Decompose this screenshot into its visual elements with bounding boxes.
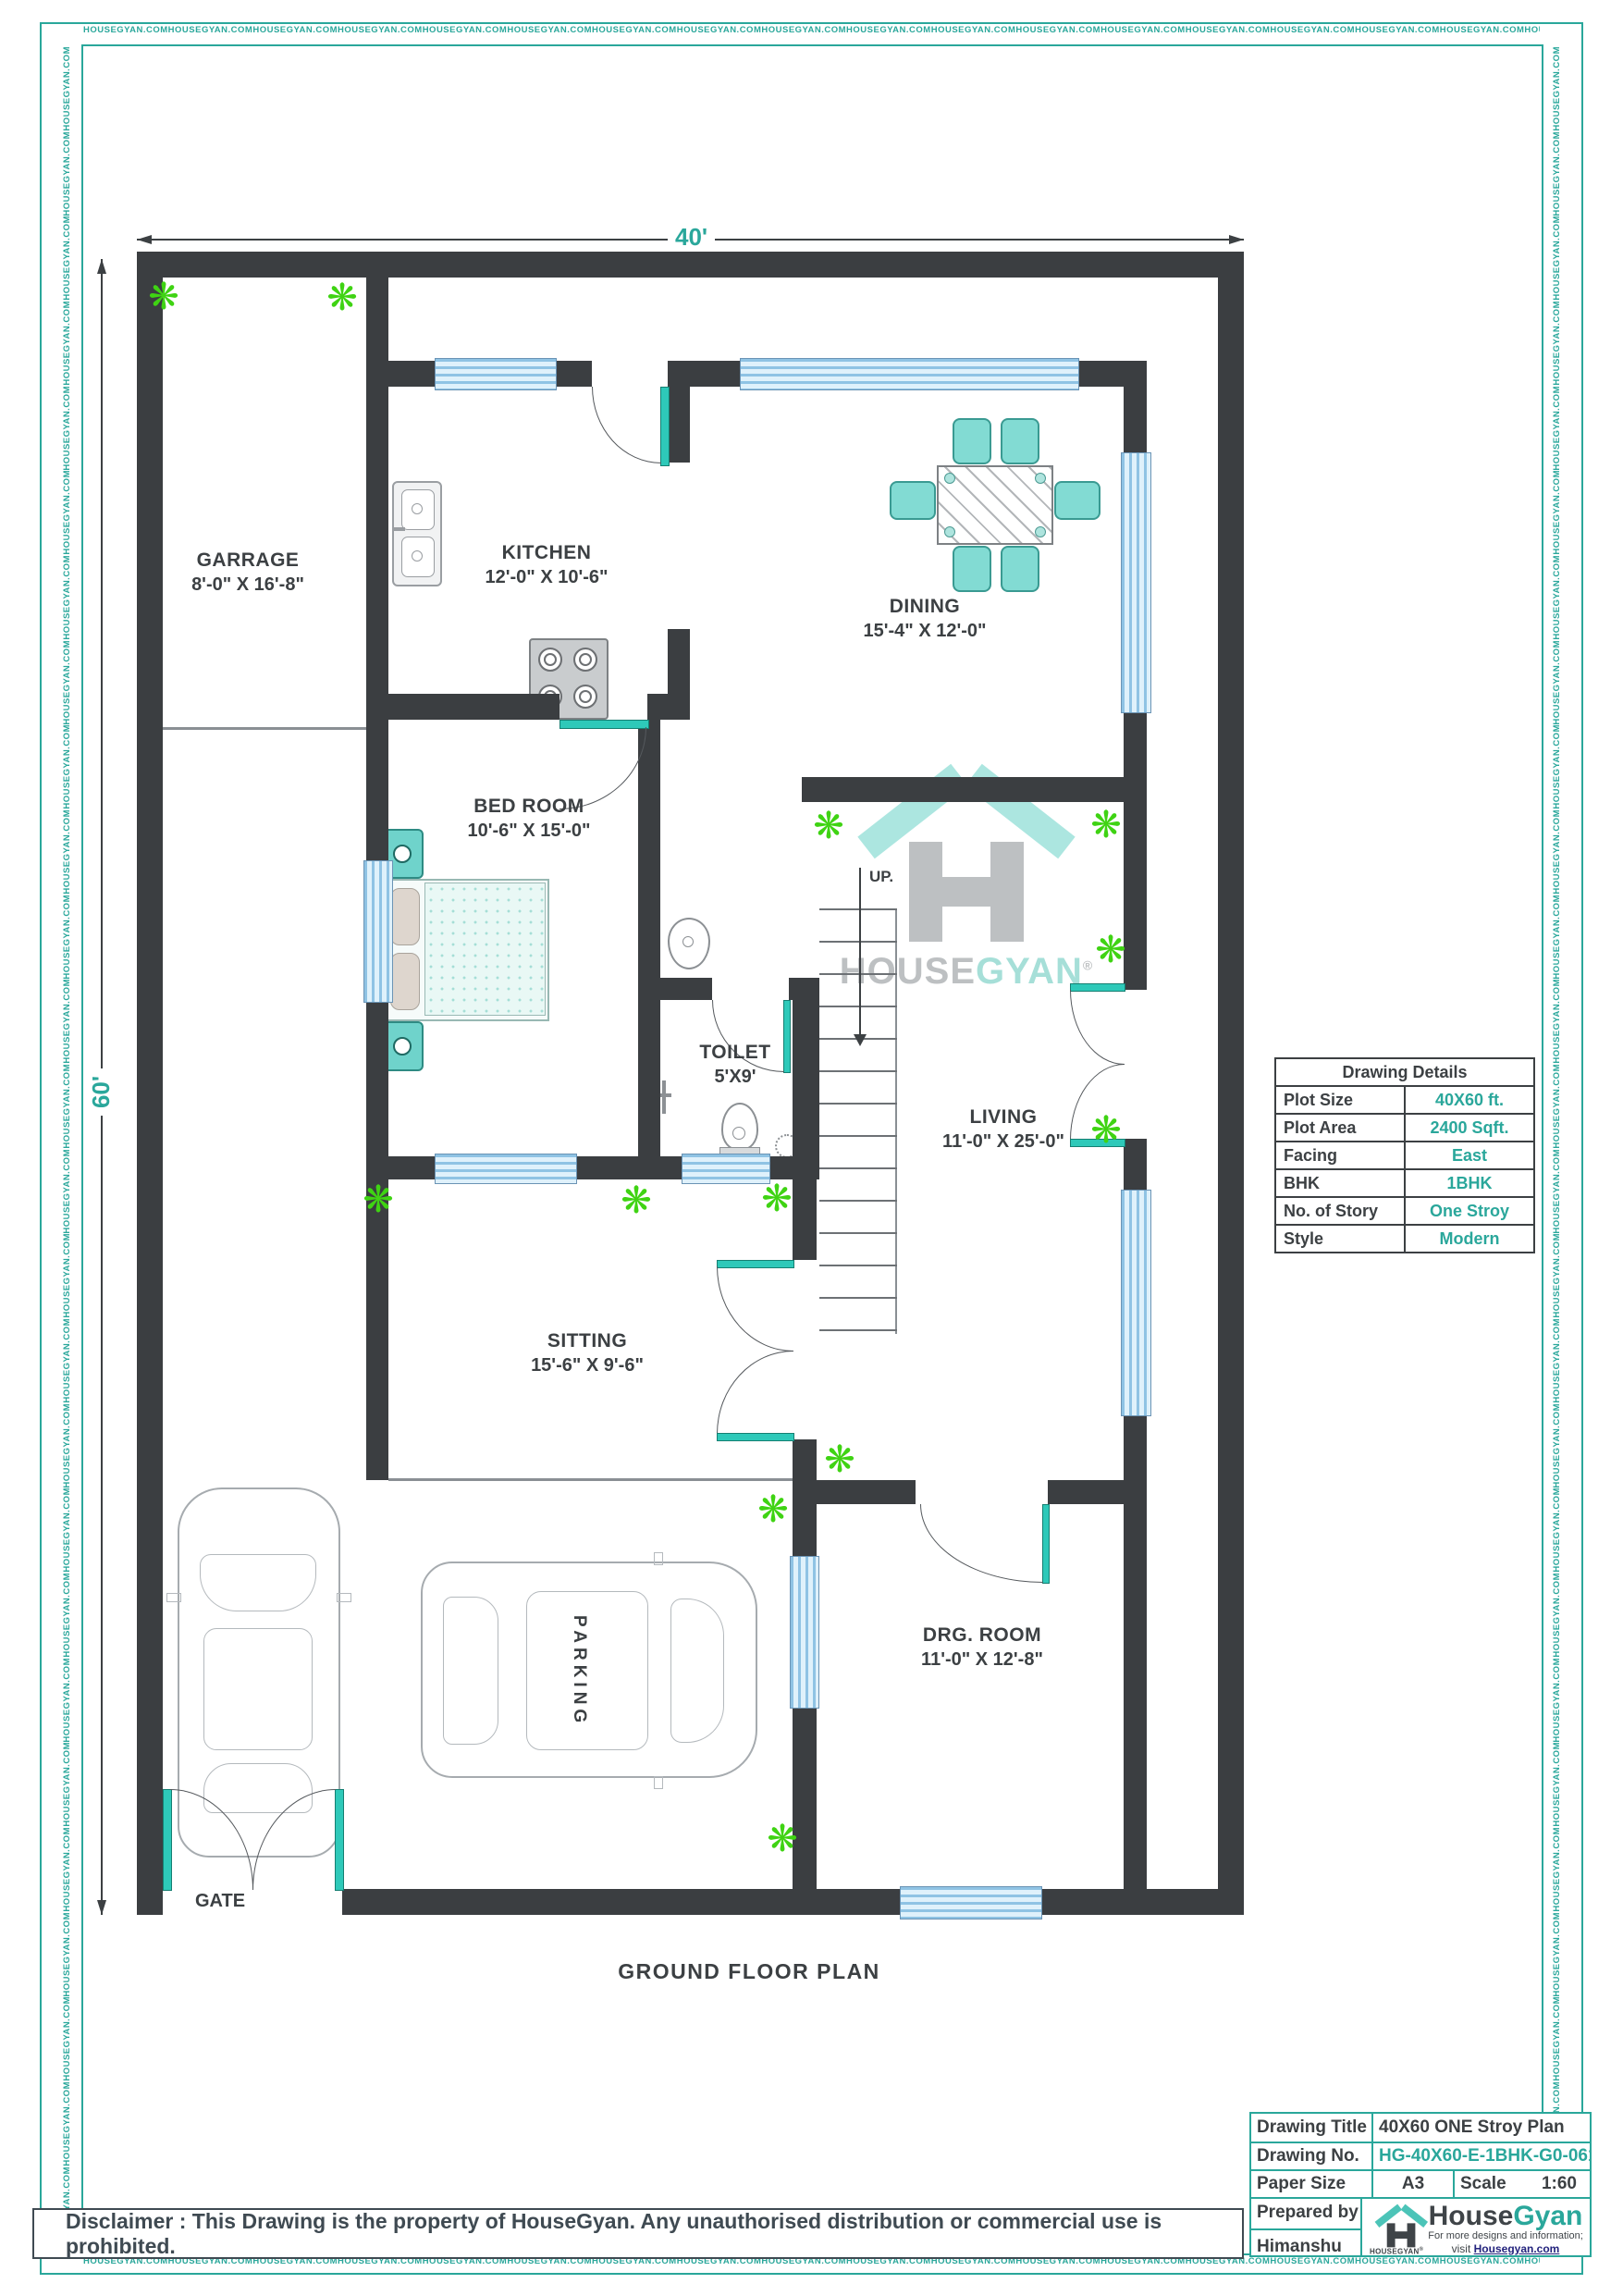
watermark-text: HOUSEGYAN.COM bbox=[62, 46, 72, 131]
watermark-text: HOUSEGYAN.COM bbox=[338, 25, 423, 42]
watermark-text: HOUSEGYAN.COM bbox=[1552, 1912, 1562, 1997]
drawing-details-table: Drawing Details Plot Size40X60 ft.Plot A… bbox=[1274, 1057, 1535, 1253]
watermark-text: HOUSEGYAN.COM bbox=[1552, 724, 1562, 809]
wall-plot-right bbox=[1218, 252, 1244, 1915]
watermark-text: HOUSEGYAN.COM bbox=[507, 25, 592, 42]
room-label-garage: GARRAGE 8'-0" X 16'-8" bbox=[191, 549, 304, 596]
watermark-text: HOUSEGYAN.COM bbox=[1552, 216, 1562, 301]
wall-plot-bottom bbox=[342, 1889, 1218, 1915]
watermark-text: HOUSEGYAN.COM bbox=[62, 1487, 72, 1573]
sink-drain-icon bbox=[412, 550, 423, 562]
shower-tap-icon bbox=[662, 1080, 666, 1114]
logo-h-icon bbox=[990, 842, 1024, 942]
wall-plot-top bbox=[137, 252, 1244, 278]
prepared-by-value: Himanshu bbox=[1251, 2230, 1360, 2265]
table-bolt-icon bbox=[1035, 473, 1046, 484]
door-drg-leaf bbox=[1042, 1504, 1050, 1584]
details-row: FacingEast bbox=[1276, 1142, 1533, 1170]
sink-drain-icon bbox=[412, 503, 423, 514]
watermark-text: HOUSEGYAN.COM bbox=[1355, 25, 1440, 42]
drawing-details-title: Drawing Details bbox=[1276, 1059, 1533, 1087]
parking-label: PARKING bbox=[569, 1584, 589, 1759]
watermark-text: HOUSEGYAN.COM bbox=[62, 1912, 72, 1997]
room-name: DRG. ROOM bbox=[921, 1624, 1043, 1647]
wall-dining-bottom bbox=[802, 777, 1147, 802]
room-dims: 8'-0" X 16'-8" bbox=[191, 574, 304, 596]
nightstand-knob-icon bbox=[393, 1037, 412, 1055]
watermark-ring-left: HOUSEGYAN.COMHOUSEGYAN.COMHOUSEGYAN.COMH… bbox=[55, 46, 79, 2250]
burner-icon bbox=[573, 648, 597, 672]
room-label-living: LIVING 11'-0" X 25'-0" bbox=[942, 1106, 1064, 1153]
paper-size-label: Paper Size bbox=[1251, 2171, 1373, 2197]
room-name: LIVING bbox=[942, 1106, 1064, 1129]
window-drg-left bbox=[790, 1556, 819, 1709]
logo-wordmark: HouseGyan bbox=[1427, 2201, 1584, 2232]
logo-tagline-link: visit Housegyan.com bbox=[1427, 2242, 1584, 2255]
window-toilet-bottom bbox=[682, 1154, 770, 1184]
dining-table bbox=[937, 465, 1053, 545]
logo-h-icon bbox=[909, 842, 942, 942]
housegyan-logo-icon bbox=[1370, 2203, 1418, 2251]
room-dims: 10'-6" X 15'-0" bbox=[468, 821, 591, 842]
watermark-text: HOUSEGYAN.COM bbox=[1552, 809, 1562, 895]
details-row: Plot Size40X60 ft. bbox=[1276, 1087, 1533, 1115]
watermark-text: HOUSEGYAN.COM bbox=[62, 1149, 72, 1234]
burner-icon bbox=[573, 685, 597, 709]
table-bolt-icon bbox=[944, 473, 955, 484]
door-toilet-leaf bbox=[783, 1000, 791, 1073]
watermark-text: HOUSEGYAN.COM bbox=[1270, 25, 1355, 42]
watermark-text: HOUSEGYAN.COM bbox=[1552, 301, 1562, 386]
room-dims: 12'-0" X 10'-6" bbox=[486, 567, 609, 588]
details-row: No. of StoryOne Stroy bbox=[1276, 1198, 1533, 1226]
gate-leaf-right bbox=[335, 1789, 344, 1891]
details-value: East bbox=[1406, 1142, 1533, 1168]
details-label: BHK bbox=[1276, 1170, 1406, 1196]
watermark-text: HOUSEGYAN.COM bbox=[252, 25, 338, 42]
room-label-sitting: SITTING 15'-6" X 9'-6" bbox=[531, 1330, 644, 1376]
width-dimension: 40' bbox=[668, 223, 715, 252]
logo-small-text: HOUSEGYAN® bbox=[1370, 2247, 1421, 2256]
window-living-right bbox=[1121, 1190, 1151, 1416]
arrow-left-icon bbox=[137, 235, 152, 244]
details-value: Modern bbox=[1406, 1226, 1533, 1252]
room-dims: 11'-0" X 25'-0" bbox=[942, 1131, 1064, 1153]
scale-value: 1:60 bbox=[1531, 2171, 1590, 2197]
window-bedroom-bottom bbox=[435, 1154, 577, 1184]
watermark-text: HOUSEGYAN.COM bbox=[1552, 46, 1562, 131]
watermark-text: HOUSEGYAN.COM bbox=[1552, 1233, 1562, 1318]
watermark-text: HOUSEGYAN.COM bbox=[1552, 470, 1562, 555]
dining-chair bbox=[953, 546, 991, 592]
bed bbox=[384, 879, 549, 1021]
sitting-door-leaf-bottom bbox=[717, 1433, 794, 1441]
watermark-text: HOUSEGYAN.COM bbox=[1552, 1996, 1562, 2081]
title-block: Drawing Title 40X60 ONE Stroy Plan Drawi… bbox=[1249, 2112, 1592, 2257]
wall-kitchen-bottom-b bbox=[647, 694, 690, 720]
details-value: 1BHK bbox=[1406, 1170, 1533, 1196]
drawing-title-value: 40X60 ONE Stroy Plan bbox=[1373, 2114, 1590, 2142]
gate-label: GATE bbox=[195, 1891, 245, 1912]
window-bedroom-left bbox=[363, 860, 393, 1003]
room-label-dining: DINING 15'-4" X 12'-0" bbox=[864, 596, 987, 642]
wall-toilet-right bbox=[793, 978, 819, 1179]
paper-size-value: A3 bbox=[1373, 2171, 1455, 2197]
room-name: SITTING bbox=[531, 1330, 644, 1352]
window-dining-right bbox=[1121, 452, 1151, 713]
title-block-logo-cell: HOUSEGYAN® HouseGyan For more designs an… bbox=[1362, 2199, 1590, 2257]
room-dims: 5'X9' bbox=[699, 1067, 770, 1088]
details-label: Facing bbox=[1276, 1142, 1406, 1168]
watermark-text: HOUSEGYAN.COM bbox=[1552, 640, 1562, 725]
watermark-text: HOUSEGYAN.COM bbox=[62, 386, 72, 471]
sink-faucet-icon bbox=[392, 527, 405, 531]
scale-label: Scale bbox=[1455, 2171, 1531, 2197]
staircase bbox=[819, 908, 897, 1334]
watermark-text: HOUSEGYAN.COM bbox=[62, 301, 72, 386]
watermark-text: HOUSEGYAN.COM bbox=[1186, 25, 1271, 42]
fan-icon: ❋ bbox=[767, 1821, 798, 1858]
logo-h-icon bbox=[941, 877, 992, 907]
wall-kitchen-dining-divider bbox=[668, 387, 690, 463]
window-drg-bottom bbox=[900, 1886, 1042, 1920]
details-label: Plot Area bbox=[1276, 1115, 1406, 1141]
kitchen-sink bbox=[392, 481, 442, 586]
watermark-text: HOUSEGYAN.COM bbox=[1552, 979, 1562, 1064]
window-kitchen-top bbox=[435, 358, 557, 390]
dining-chair bbox=[1001, 418, 1039, 464]
watermark-text: HOUSEGYAN.COM bbox=[62, 640, 72, 725]
watermark-text: HOUSEGYAN.COM bbox=[1015, 25, 1100, 42]
watermark-text: HOUSEGYAN.COM bbox=[1552, 1658, 1562, 1743]
fan-icon: ❋ bbox=[326, 279, 358, 316]
arrow-down-icon bbox=[97, 1900, 106, 1915]
room-label-toilet: TOILET 5'X9' bbox=[699, 1042, 770, 1088]
watermark-text: HOUSEGYAN.COM bbox=[62, 724, 72, 809]
watermark-text: HOUSEGYAN.COM bbox=[846, 25, 931, 42]
height-dimension: 60' bbox=[87, 1068, 116, 1116]
details-row: Plot Area2400 Sqft. bbox=[1276, 1115, 1533, 1142]
fan-icon: ❋ bbox=[1095, 932, 1126, 969]
nightstand-knob-icon bbox=[393, 845, 412, 863]
dining-chair bbox=[953, 418, 991, 464]
watermark-text: HOUSEGYAN.COM bbox=[1552, 1487, 1562, 1573]
watermark-text: HOUSEGYAN.COM bbox=[1552, 895, 1562, 980]
watermark-text: HOUSEGYAN.COM bbox=[1552, 386, 1562, 471]
car-mirror-icon bbox=[166, 1593, 181, 1602]
drawing-no-label: Drawing No. bbox=[1251, 2143, 1373, 2169]
watermark-text: HOUSEGYAN.COM bbox=[62, 1742, 72, 1827]
title-block-row: Paper Size A3 Scale 1:60 bbox=[1251, 2171, 1590, 2199]
burner-icon bbox=[538, 648, 562, 672]
watermark-text: HOUSEGYAN.COM bbox=[1552, 1827, 1562, 1912]
watermark-text: HOUSEGYAN.COM bbox=[62, 1403, 72, 1488]
room-label-kitchen: KITCHEN 12'-0" X 10'-6" bbox=[486, 542, 609, 588]
watermark-text: HOUSEGYAN.COM bbox=[168, 25, 253, 42]
wall-bedroom-right bbox=[638, 720, 660, 978]
car-parking: PARKING bbox=[421, 1562, 757, 1778]
wall-drg-top-a bbox=[793, 1480, 916, 1504]
wall-divider-sitting-a bbox=[793, 1179, 817, 1260]
watermark-text: HOUSEGYAN.COM bbox=[1440, 25, 1525, 42]
watermark-text: HOUSEGYAN.COM bbox=[677, 25, 762, 42]
car-windshield bbox=[200, 1554, 316, 1611]
watermark-text: HOUSEGYAN.COM bbox=[83, 25, 168, 42]
fan-icon: ❋ bbox=[824, 1441, 855, 1478]
registered-icon: ® bbox=[1083, 958, 1093, 973]
watermark-text: HOUSEGYAN.COM bbox=[1100, 25, 1186, 42]
wall-divider-sitting-b bbox=[793, 1439, 817, 1480]
fan-icon: ❋ bbox=[1090, 1112, 1122, 1149]
table-bolt-icon bbox=[1035, 526, 1046, 537]
watermark-text: HOUSEGYAN.COM bbox=[931, 25, 1016, 42]
room-dims: 15'-6" X 9'-6" bbox=[531, 1355, 644, 1376]
door-kitchen-leaf bbox=[660, 387, 670, 466]
watermark-text: HOUSEGYAN.COM bbox=[62, 1573, 72, 1658]
car-mirror-icon bbox=[654, 1552, 663, 1565]
garage-open-line bbox=[163, 727, 366, 730]
prepared-by-label: Prepared by bbox=[1251, 2199, 1360, 2230]
disclaimer-bar: Disclaimer : This Drawing is the propert… bbox=[32, 2208, 1244, 2259]
car-mirror-icon bbox=[654, 1776, 663, 1789]
details-label: No. of Story bbox=[1276, 1198, 1406, 1224]
watermark-text: HOUSEGYAN.COM bbox=[1440, 2256, 1525, 2273]
watermark-text: HOUSEGYAN.COM bbox=[1524, 2256, 1540, 2273]
wall-toilet-left bbox=[638, 1000, 660, 1179]
car-mirror-icon bbox=[337, 1593, 351, 1602]
watermark-text: HOUSEGYAN.COM bbox=[1552, 1064, 1562, 1149]
details-label: Style bbox=[1276, 1226, 1406, 1252]
room-dims: 11'-0" X 12'-8" bbox=[921, 1649, 1043, 1671]
car-rear-window bbox=[443, 1597, 498, 1745]
dining-chair bbox=[1001, 546, 1039, 592]
drawing-title-label: Drawing Title bbox=[1251, 2114, 1373, 2142]
watermark-text: HOUSEGYAN.COM bbox=[592, 25, 677, 42]
watermark-text: HOUSEGYAN.COM bbox=[62, 2081, 72, 2166]
room-name: GARRAGE bbox=[191, 549, 304, 572]
watermark-text: HOUSEGYAN.COM bbox=[1552, 555, 1562, 640]
room-name: KITCHEN bbox=[486, 542, 609, 564]
wc-flush-icon bbox=[732, 1127, 745, 1140]
title-block-row: Drawing No. HG-40X60-E-1BHK-G0-061 bbox=[1251, 2143, 1590, 2171]
basin-drain-icon bbox=[682, 936, 694, 947]
watermark-text: HOUSEGYAN.COM bbox=[1552, 131, 1562, 216]
watermark-text: HOUSEGYAN.COM bbox=[62, 1318, 72, 1403]
watermark-text: HOUSEGYAN.COM bbox=[1524, 25, 1540, 42]
arrow-up-icon bbox=[97, 259, 106, 274]
car-windshield bbox=[670, 1599, 724, 1743]
watermark-text: HOUSEGYAN.COM bbox=[62, 809, 72, 895]
details-row: BHK1BHK bbox=[1276, 1170, 1533, 1198]
wall-plot-left bbox=[137, 252, 163, 1915]
watermark-text: HOUSEGYAN.COM bbox=[1355, 2256, 1440, 2273]
car-roof bbox=[203, 1628, 313, 1750]
fan-icon: ❋ bbox=[621, 1182, 652, 1219]
watermark-ring-top: HOUSEGYAN.COMHOUSEGYAN.COMHOUSEGYAN.COMH… bbox=[83, 25, 1540, 42]
sitting-open-line bbox=[388, 1478, 793, 1481]
fan-icon: ❋ bbox=[148, 278, 179, 315]
wall-kitchen-bottom-a bbox=[388, 694, 559, 720]
room-name: DINING bbox=[864, 596, 987, 618]
watermark-text: HOUSEGYAN.COM bbox=[62, 1658, 72, 1743]
wordmark-gyan: GYAN bbox=[976, 951, 1083, 992]
watermark-text: HOUSEGYAN.COM bbox=[62, 1996, 72, 2081]
disclaimer-text: Disclaimer : This Drawing is the propert… bbox=[66, 2209, 1242, 2259]
logo-tagline: For more designs and information; bbox=[1427, 2230, 1584, 2241]
fan-icon: ❋ bbox=[1090, 807, 1122, 844]
room-label-bedroom: BED ROOM 10'-6" X 15'-0" bbox=[468, 796, 591, 842]
watermark-text: HOUSEGYAN.COM bbox=[1552, 1318, 1562, 1403]
watermark-text: HOUSEGYAN.COM bbox=[423, 25, 508, 42]
arrow-right-icon bbox=[1229, 235, 1244, 244]
details-row: StyleModern bbox=[1276, 1226, 1533, 1252]
details-value: 2400 Sqft. bbox=[1406, 1115, 1533, 1141]
watermark-text: HOUSEGYAN.COM bbox=[62, 1064, 72, 1149]
watermark-text: HOUSEGYAN.COM bbox=[1552, 1149, 1562, 1234]
fan-icon: ❋ bbox=[757, 1491, 789, 1528]
fan-icon: ❋ bbox=[363, 1181, 394, 1218]
room-name: BED ROOM bbox=[468, 796, 591, 818]
details-label: Plot Size bbox=[1276, 1087, 1406, 1113]
wall-toilet-top-a bbox=[638, 978, 712, 1000]
watermark-text: HOUSEGYAN.COM bbox=[1552, 1573, 1562, 1658]
watermark-ring-right: HOUSEGYAN.COMHOUSEGYAN.COMHOUSEGYAN.COMH… bbox=[1544, 46, 1568, 2250]
watermark-text: HOUSEGYAN.COM bbox=[1552, 1403, 1562, 1488]
bed-blanket bbox=[424, 883, 546, 1016]
dining-chair bbox=[1054, 481, 1100, 520]
room-dims: 15'-4" X 12'-0" bbox=[864, 621, 987, 642]
details-value: One Stroy bbox=[1406, 1198, 1533, 1224]
watermark-text: HOUSEGYAN.COM bbox=[1552, 1742, 1562, 1827]
room-name: TOILET bbox=[699, 1042, 770, 1064]
window-dining-top bbox=[740, 358, 1079, 390]
watermark-text: HOUSEGYAN.COM bbox=[62, 131, 72, 216]
watermark-text: HOUSEGYAN.COM bbox=[761, 25, 846, 42]
fan-icon: ❋ bbox=[813, 808, 844, 845]
watermark-text: HOUSEGYAN.COM bbox=[62, 216, 72, 301]
watermark-text: HOUSEGYAN.COM bbox=[62, 895, 72, 980]
fan-icon: ❋ bbox=[761, 1180, 793, 1217]
watermark-text: HOUSEGYAN.COM bbox=[62, 470, 72, 555]
pillow bbox=[390, 953, 420, 1010]
details-value: 40X60 ft. bbox=[1406, 1087, 1533, 1113]
watermark-text: HOUSEGYAN.COM bbox=[62, 1827, 72, 1912]
up-label: UP. bbox=[869, 868, 893, 886]
watermark-text: HOUSEGYAN.COM bbox=[62, 1233, 72, 1318]
housegyan-link[interactable]: Housegyan.com bbox=[1474, 2242, 1560, 2255]
pillow bbox=[390, 888, 420, 945]
floor-plan-page: HOUSEGYAN.COMHOUSEGYAN.COMHOUSEGYAN.COMH… bbox=[0, 0, 1623, 2296]
dining-chair bbox=[890, 481, 936, 520]
watermark-text: HOUSEGYAN.COM bbox=[62, 555, 72, 640]
title-block-row: Drawing Title 40X60 ONE Stroy Plan bbox=[1251, 2114, 1590, 2143]
watermark-text: HOUSEGYAN.COM bbox=[62, 979, 72, 1064]
staircase-arrow-head bbox=[854, 1034, 867, 1046]
plan-title: GROUND FLOOR PLAN bbox=[618, 1959, 880, 1984]
drawing-no-value: HG-40X60-E-1BHK-G0-061 bbox=[1373, 2143, 1590, 2169]
drawing-details-rows: Plot Size40X60 ft.Plot Area2400 Sqft.Fac… bbox=[1276, 1087, 1533, 1252]
table-bolt-icon bbox=[944, 526, 955, 537]
staircase-arrow-line bbox=[859, 868, 861, 1034]
room-label-drg: DRG. ROOM 11'-0" X 12'-8" bbox=[921, 1624, 1043, 1671]
